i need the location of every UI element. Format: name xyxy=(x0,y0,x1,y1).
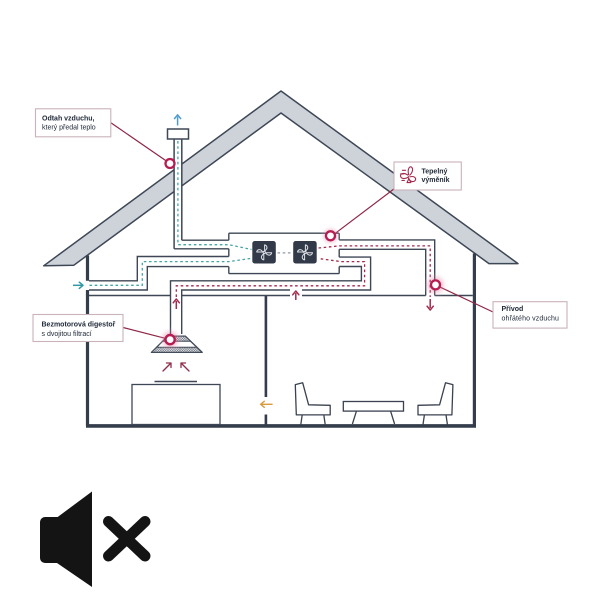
svg-text:výměník: výměník xyxy=(422,177,450,184)
svg-text:Bezmotorová digestoř: Bezmotorová digestoř xyxy=(42,322,116,329)
svg-text:který předal teplo: který předal teplo xyxy=(42,125,96,132)
svg-text:Odtah vzduchu,: Odtah vzduchu, xyxy=(42,115,95,122)
svg-text:Přívod: Přívod xyxy=(502,306,524,313)
svg-text:Tepelný: Tepelný xyxy=(422,169,448,176)
svg-text:s dvojitou filtrací: s dvojitou filtrací xyxy=(42,331,92,338)
svg-text:ohřátého vzduchu: ohřátého vzduchu xyxy=(502,316,560,323)
